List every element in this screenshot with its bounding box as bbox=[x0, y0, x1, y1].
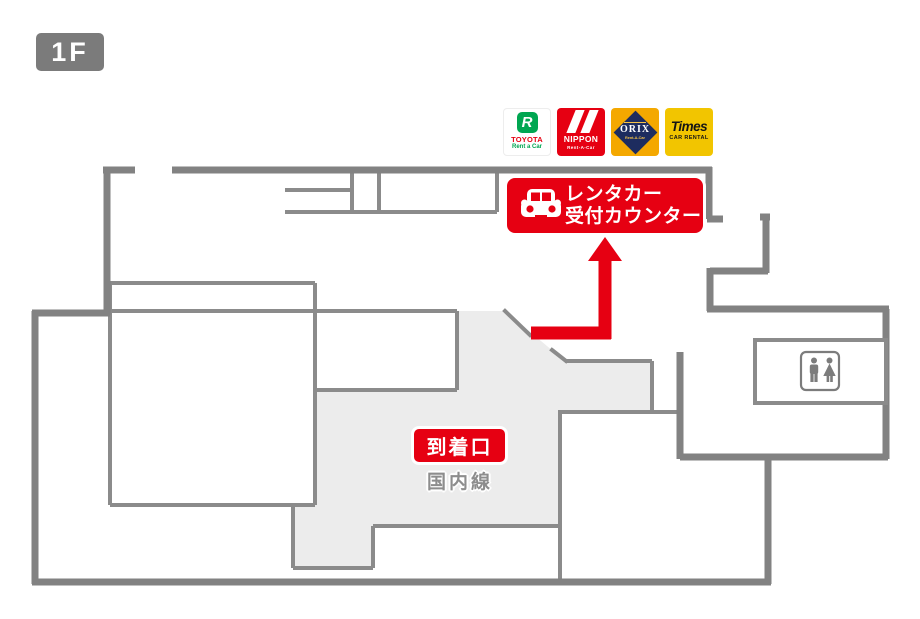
toyota-brand-text: TOYOTA bbox=[511, 135, 543, 144]
orix-rule-line bbox=[624, 122, 646, 123]
banner-line2: 受付カウンター bbox=[565, 206, 702, 228]
nippon-rent-a-car-logo: NIPPON Rent-A-Car bbox=[557, 108, 605, 156]
toyota-r-icon: R bbox=[517, 112, 538, 133]
rental-counter-text: レンタカー 受付カウンター bbox=[565, 184, 702, 227]
toyota-rent-a-car-logo: R TOYOTA Rent a Car bbox=[503, 108, 551, 156]
restroom-icon bbox=[801, 352, 839, 390]
times-brand-text: Times bbox=[671, 119, 707, 134]
floor-plan bbox=[0, 0, 920, 619]
car-icon bbox=[520, 187, 562, 225]
toyota-sub-text: Rent a Car bbox=[512, 144, 542, 150]
domestic-line-label: 国内線 bbox=[408, 467, 512, 494]
orix-brand-text: ORIX bbox=[611, 124, 659, 135]
orix-rent-a-car-logo: ORIX Rent-A-Car bbox=[611, 108, 659, 156]
orix-sub-text: Rent-A-Car bbox=[611, 136, 659, 140]
direction-arrow bbox=[531, 237, 622, 340]
floor-badge: 1F bbox=[36, 33, 104, 71]
floor-guide-map: 1F R TOYOTA Rent a Car NIPPON Rent-A-Car… bbox=[0, 0, 920, 619]
times-car-rental-logo: Times CAR RENTAL bbox=[665, 108, 713, 156]
arrival-gate-label: 到着口 bbox=[414, 429, 505, 462]
nippon-brand-text: NIPPON bbox=[564, 134, 598, 144]
rental-company-logos: R TOYOTA Rent a Car NIPPON Rent-A-Car OR… bbox=[503, 108, 713, 156]
rental-counter-banner: レンタカー 受付カウンター bbox=[507, 178, 703, 233]
times-sub-text: CAR RENTAL bbox=[669, 135, 708, 141]
nippon-stripes-icon bbox=[557, 108, 605, 133]
banner-line1: レンタカー bbox=[565, 184, 702, 206]
nippon-sub-text: Rent-A-Car bbox=[567, 145, 595, 150]
